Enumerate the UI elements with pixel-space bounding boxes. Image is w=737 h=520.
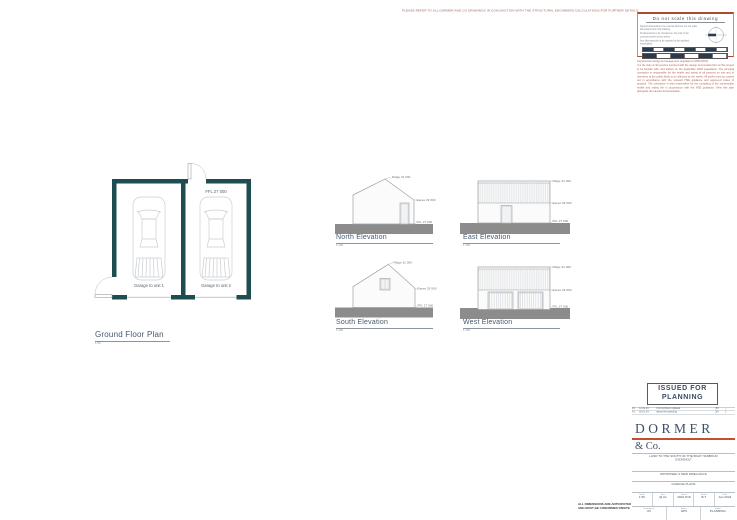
ffl-annotation: FFL 27 000 — [417, 220, 433, 224]
drawing-title-row: GARAGE PLANS — [632, 481, 735, 492]
ridge-annotation: Ridge 31 000 — [553, 179, 572, 183]
door — [501, 206, 512, 224]
eaves-annotation: Eaves 29 500 — [553, 201, 572, 205]
west-elevation-title-block: West Elevation 1:100 — [463, 319, 560, 335]
elevation-scale: 1:100 — [463, 329, 560, 332]
field-job-no: Job no2022-P18 — [673, 493, 694, 506]
cdm-regulations-note: Construction design & management regulat… — [637, 60, 734, 128]
field-drawn: DrawnB.T — [693, 493, 714, 506]
do-not-scale-title: Do not scale this drawing — [646, 16, 725, 23]
plan-title-block: Ground Floor Plan 1:50 — [95, 330, 170, 348]
elevation-title: North Elevation — [336, 234, 433, 241]
cladding — [478, 183, 550, 203]
ridge-annotation: Ridge 31 000 — [553, 265, 572, 269]
south-elevation-title-block: South Elevation 1:100 — [336, 319, 433, 335]
elevation-title: East Elevation — [463, 234, 560, 241]
project-line-2: EVERSHOLT — [632, 458, 735, 462]
field-value: @ A1 — [653, 496, 673, 500]
eaves-annotation: Eaves 29 500 — [553, 288, 572, 292]
eaves-annotation: Eaves 29 500 — [418, 286, 437, 290]
fields-row-2: Drawing no04 SeriesGP5 StatusPLANNING — [632, 506, 735, 520]
stamp-line-2: PLANNING — [662, 394, 703, 403]
rev-by: BT — [715, 411, 725, 414]
ffl-annotation: FFL 27 000 — [553, 305, 569, 309]
garage-door-2 — [518, 292, 543, 310]
ground-band — [335, 308, 433, 318]
door-swing-arc — [191, 164, 206, 179]
scale-box-note: Figured dimensions to be used at all tim… — [640, 25, 702, 31]
plan-title: Ground Floor Plan — [95, 330, 170, 339]
elevation-scale: 1:100 — [463, 244, 560, 247]
project-line-3: PROPOSED 3 NEW DWELLINGS — [632, 472, 735, 476]
scale-box-body: Figured dimensions to be used at all tim… — [640, 25, 731, 46]
north-elevation-drawing: Ridge 31 000 Eaves 29 500 FFL 27 000 — [335, 172, 441, 238]
plan-door-top — [188, 164, 206, 180]
project-description-row: PROPOSED 3 NEW DWELLINGS — [632, 471, 735, 482]
eaves-annotation: Eaves 29 500 — [417, 198, 436, 202]
issued-for-planning-stamp: ISSUED FOR PLANNING — [647, 383, 718, 405]
cdm-note-body: It is the duty of all persons involved w… — [637, 64, 734, 93]
rev-id: P1 — [632, 411, 639, 414]
field-series: SeriesGP5 — [666, 507, 701, 520]
elevation-title: South Elevation — [336, 319, 433, 326]
scale-bar-2 — [642, 53, 728, 59]
field-value: 2022-P18 — [674, 496, 694, 500]
east-elevation-drawing: Ridge 31 000 Eaves 29 500 FFL 27 000 — [460, 172, 572, 238]
scale-box-note: Any discrepancies to be reported to the … — [640, 39, 702, 45]
ridge-annotation: Ridge 31 000 — [394, 261, 413, 265]
project-address-row: LAND TO THE SOUTH OF THE BOAT HARBOUR EV… — [632, 453, 735, 471]
ground-band — [460, 223, 570, 234]
elevation-scale: 1:100 — [336, 329, 433, 332]
garage-door-1 — [488, 292, 513, 310]
cdm-note-title: Construction design & management regulat… — [637, 60, 734, 64]
east-elevation-title-block: East Elevation 1:100 — [463, 234, 560, 250]
field-value: Jan 2024 — [715, 496, 735, 500]
ffl-label: FFL 27 000 — [205, 189, 227, 194]
rev-checked: - — [725, 411, 735, 414]
rev-date: 18.01.24 — [639, 411, 656, 414]
cladding — [478, 269, 550, 290]
north-elevation-title-block: North Elevation 1:100 — [336, 234, 433, 250]
scale-bar-1 — [642, 47, 728, 52]
top-reference-note: PLEASE REFER TO ALL DORMER AND CO DRAWIN… — [402, 9, 632, 17]
door — [400, 203, 409, 224]
stamp-line-1: ISSUED FOR — [658, 385, 707, 394]
top-reference-note-text: PLEASE REFER TO ALL DORMER AND CO DRAWIN… — [402, 9, 632, 13]
field-size: Size@ A1 — [652, 493, 673, 506]
south-elevation-drawing: Ridge 31 000 Eaves 29 500 FFL 27 000 — [335, 258, 441, 322]
field-value: GP5 — [667, 510, 701, 514]
plan-door-side — [95, 277, 112, 298]
field-status: StatusPLANNING — [700, 507, 735, 520]
garage-unit2-label: Garage to unit 2 — [201, 283, 232, 288]
practice-name: DORMER — [632, 421, 735, 437]
car-outline-unit1 — [133, 197, 165, 280]
elevation-title: West Elevation — [463, 319, 560, 326]
door-swing-arc — [95, 277, 112, 295]
ffl-annotation: FFL 27 000 — [418, 304, 434, 308]
scale-bars — [640, 47, 731, 59]
revision-table: P2 12.02.24 Unit numbers updated BT - P1… — [632, 407, 735, 421]
scale-box-notes: Figured dimensions to be used at all tim… — [640, 25, 702, 45]
ground-floor-plan-drawing: FFL 27 000 Garage to unit 1 Garage to un… — [93, 157, 259, 303]
field-value: B.T — [694, 496, 714, 500]
garage-unit1-label: Garage to unit 1 — [134, 283, 165, 288]
dimensions-note: ALL DIMENSIONS ARE ANTICIPATED AND MUST … — [578, 503, 640, 519]
revision-row: P1 18.01.24 Issued for planning BT - — [632, 411, 735, 415]
plan-scale: 1:50 — [95, 342, 170, 345]
do-not-scale-box: Do not scale this drawing Figured dimens… — [637, 12, 734, 57]
drawing-sheet: PLEASE REFER TO ALL DORMER AND CO DRAWIN… — [0, 0, 737, 520]
field-value: PLANNING — [701, 510, 735, 514]
ridge-annotation: Ridge 31 000 — [392, 175, 411, 179]
north-compass-icon — [702, 25, 728, 46]
title-block: DORMER & Co. LAND TO THE SOUTH OF THE BO… — [632, 421, 735, 520]
scale-box-note: All dimensions to be checked on site pri… — [640, 32, 702, 38]
field-value: 1:50 — [632, 496, 652, 500]
ground-band — [335, 224, 433, 234]
west-elevation-drawing: Ridge 31 000 Eaves 29 500 FFL 27 000 — [460, 258, 572, 322]
fields-row-1: Scale1:50 Size@ A1 Job no2022-P18 DrawnB… — [632, 492, 735, 506]
elevation-scale: 1:100 — [336, 244, 433, 247]
brand-rule — [632, 438, 735, 440]
dimensions-note-line-2: AND MUST BE CONFIRMED ONSITE — [578, 507, 640, 511]
field-date: DateJan 2024 — [714, 493, 735, 506]
project-line-1: LAND TO THE SOUTH OF THE BOAT HARBOUR — [632, 454, 735, 458]
drawing-title: GARAGE PLANS — [632, 483, 735, 487]
ffl-annotation: FFL 27 000 — [553, 219, 569, 223]
car-outline-unit2 — [200, 197, 232, 280]
practice-name-suffix: & Co. — [632, 441, 735, 452]
rev-description: Issued for planning — [656, 411, 715, 414]
